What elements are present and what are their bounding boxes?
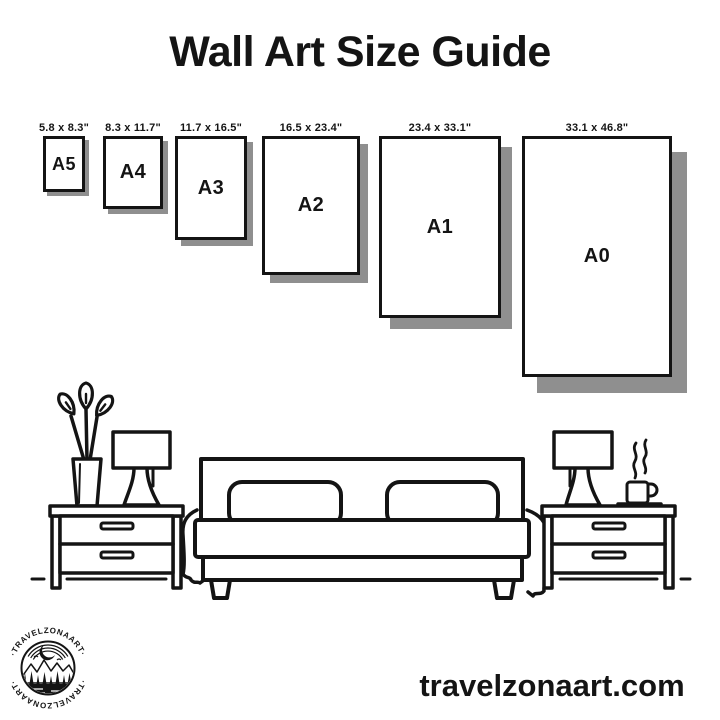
size-dimensions-a4: 8.3 x 11.7" xyxy=(105,122,161,134)
size-name-a4: A4 xyxy=(120,161,147,184)
size-name-a2: A2 xyxy=(298,194,325,217)
size-frame-a2: 16.5 x 23.4" A2 xyxy=(262,136,360,275)
size-dimensions-a0: 33.1 x 46.8" xyxy=(566,122,629,134)
nightstand-right-icon xyxy=(542,506,675,588)
coffee-cup-icon xyxy=(618,440,661,504)
wall-art-size-guide-page: Wall Art Size Guide 5.8 x 8.3" A5 8.3 x … xyxy=(0,0,720,720)
bedroom-illustration xyxy=(0,380,720,608)
size-frame-a4: 8.3 x 11.7" A4 xyxy=(103,136,163,209)
size-frame-a3: 11.7 x 16.5" A3 xyxy=(175,136,247,240)
nightstand-left-icon xyxy=(50,506,183,588)
size-frame-a0: 33.1 x 46.8" A0 xyxy=(522,136,672,377)
size-dimensions-a5: 5.8 x 8.3" xyxy=(39,122,89,134)
size-frame-a1: 23.4 x 33.1" A1 xyxy=(379,136,501,318)
website-url: travelzonaart.com xyxy=(419,668,684,704)
brand-logo: ·TRAVELZONAART· ·TRAVELZONAART· xyxy=(3,621,95,715)
size-frame-a5: 5.8 x 8.3" A5 xyxy=(43,136,85,192)
size-dimensions-a2: 16.5 x 23.4" xyxy=(280,122,343,134)
size-dimensions-a3: 11.7 x 16.5" xyxy=(180,122,242,134)
potted-plant-icon xyxy=(56,383,116,506)
steam-icon xyxy=(634,443,636,478)
size-name-a1: A1 xyxy=(427,216,454,239)
page-title: Wall Art Size Guide xyxy=(0,28,720,77)
size-name-a3: A3 xyxy=(198,177,225,200)
size-name-a0: A0 xyxy=(584,245,611,268)
table-lamp-right-icon xyxy=(554,432,612,505)
double-bed-icon xyxy=(183,459,547,598)
size-name-a5: A5 xyxy=(52,154,76,175)
table-lamp-left-icon xyxy=(113,432,170,505)
size-dimensions-a1: 23.4 x 33.1" xyxy=(409,122,472,134)
